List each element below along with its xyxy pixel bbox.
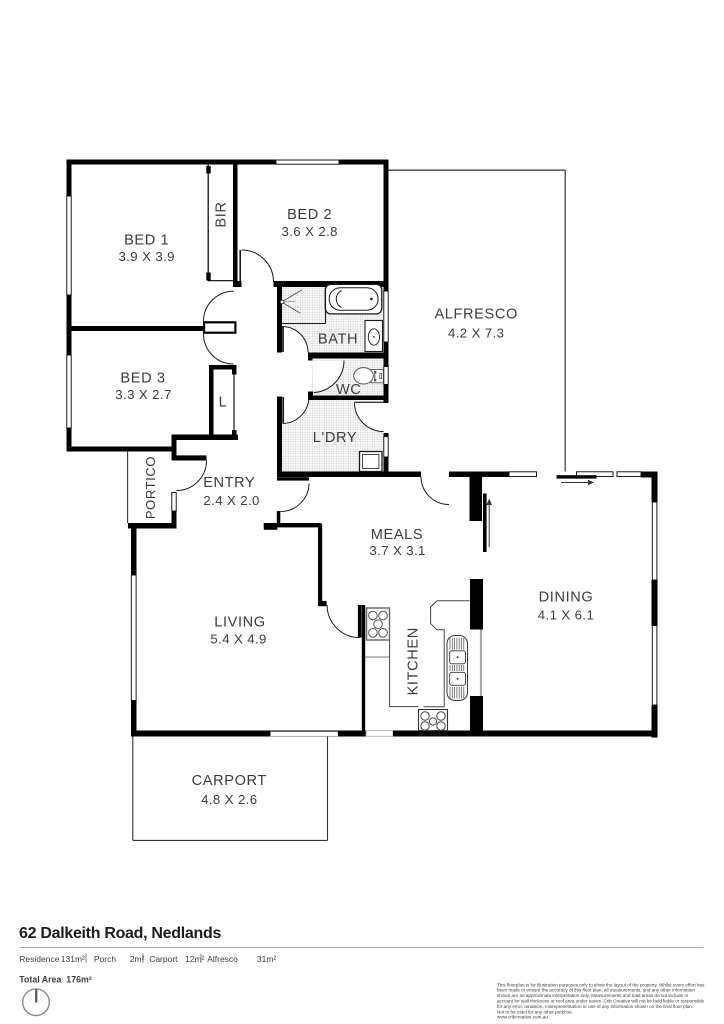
svg-text:Total Area: Total Area xyxy=(19,975,61,985)
svg-text:2.4 X 2.0: 2.4 X 2.0 xyxy=(203,493,259,508)
svg-text:3.9 X 3.9: 3.9 X 3.9 xyxy=(119,249,175,264)
svg-text:5.4 X 4.9: 5.4 X 4.9 xyxy=(210,632,266,647)
svg-text:shown are an approximate inter: shown are an approximate interpretation … xyxy=(497,993,689,998)
svg-text:ALFRESCO: ALFRESCO xyxy=(434,306,517,322)
svg-text:ENTRY: ENTRY xyxy=(203,475,255,491)
svg-text:4.8 X 2.6: 4.8 X 2.6 xyxy=(201,792,257,807)
svg-text:131m²: 131m² xyxy=(61,954,85,964)
svg-text:2m²: 2m² xyxy=(130,954,145,964)
svg-text:L'DRY: L'DRY xyxy=(313,430,357,446)
svg-text:Residence: Residence xyxy=(19,954,59,964)
svg-text:PORTICO: PORTICO xyxy=(143,456,158,519)
svg-text:Alfresco: Alfresco xyxy=(207,954,238,964)
svg-text:176m²: 176m² xyxy=(66,975,91,985)
svg-text:Porch: Porch xyxy=(94,954,116,964)
svg-text:DINING: DINING xyxy=(539,590,594,606)
svg-text:KITCHEN: KITCHEN xyxy=(406,627,422,695)
svg-text:been made to ensure the accura: been made to ensure the accuracy of this… xyxy=(497,988,695,993)
svg-text:31m²: 31m² xyxy=(257,954,277,964)
svg-text:BED 3: BED 3 xyxy=(120,370,165,386)
svg-text:3.3 X 2.7: 3.3 X 2.7 xyxy=(115,387,171,402)
svg-text:LIVING: LIVING xyxy=(214,614,265,630)
svg-text:Not to be used for any other p: Not to be used for any other purpose. xyxy=(497,1009,573,1014)
svg-text:4.2 X 7.3: 4.2 X 7.3 xyxy=(448,325,504,340)
svg-text:Carport: Carport xyxy=(149,954,178,964)
svg-text:L: L xyxy=(219,395,228,411)
svg-text:BED 1: BED 1 xyxy=(124,233,169,249)
svg-text:for any error, omission, misre: for any error, omission, misrepresentati… xyxy=(497,1004,693,1009)
svg-text:CARPORT: CARPORT xyxy=(192,773,267,789)
svg-text:3.7 X 3.1: 3.7 X 3.1 xyxy=(369,543,425,558)
svg-text:MEALS: MEALS xyxy=(371,527,423,543)
svg-text:WC: WC xyxy=(336,382,362,398)
svg-text:62 Dalkeith Road, Nedlands: 62 Dalkeith Road, Nedlands xyxy=(19,925,221,942)
svg-text:This floorplan is for illustra: This floorplan is for illustration purpo… xyxy=(497,982,705,987)
svg-text:BED 2: BED 2 xyxy=(287,207,332,223)
svg-text:www.cribcreative.com.au: www.cribcreative.com.au xyxy=(497,1015,548,1020)
svg-text:12m²: 12m² xyxy=(185,954,205,964)
svg-text:3.6 X 2.8: 3.6 X 2.8 xyxy=(282,224,338,239)
svg-text:account for wall thickness or: account for wall thickness or roof area … xyxy=(497,999,705,1004)
svg-text:4.1 X 6.1: 4.1 X 6.1 xyxy=(538,608,594,623)
svg-text:BATH: BATH xyxy=(318,332,358,348)
svg-text:BIR: BIR xyxy=(214,201,230,227)
